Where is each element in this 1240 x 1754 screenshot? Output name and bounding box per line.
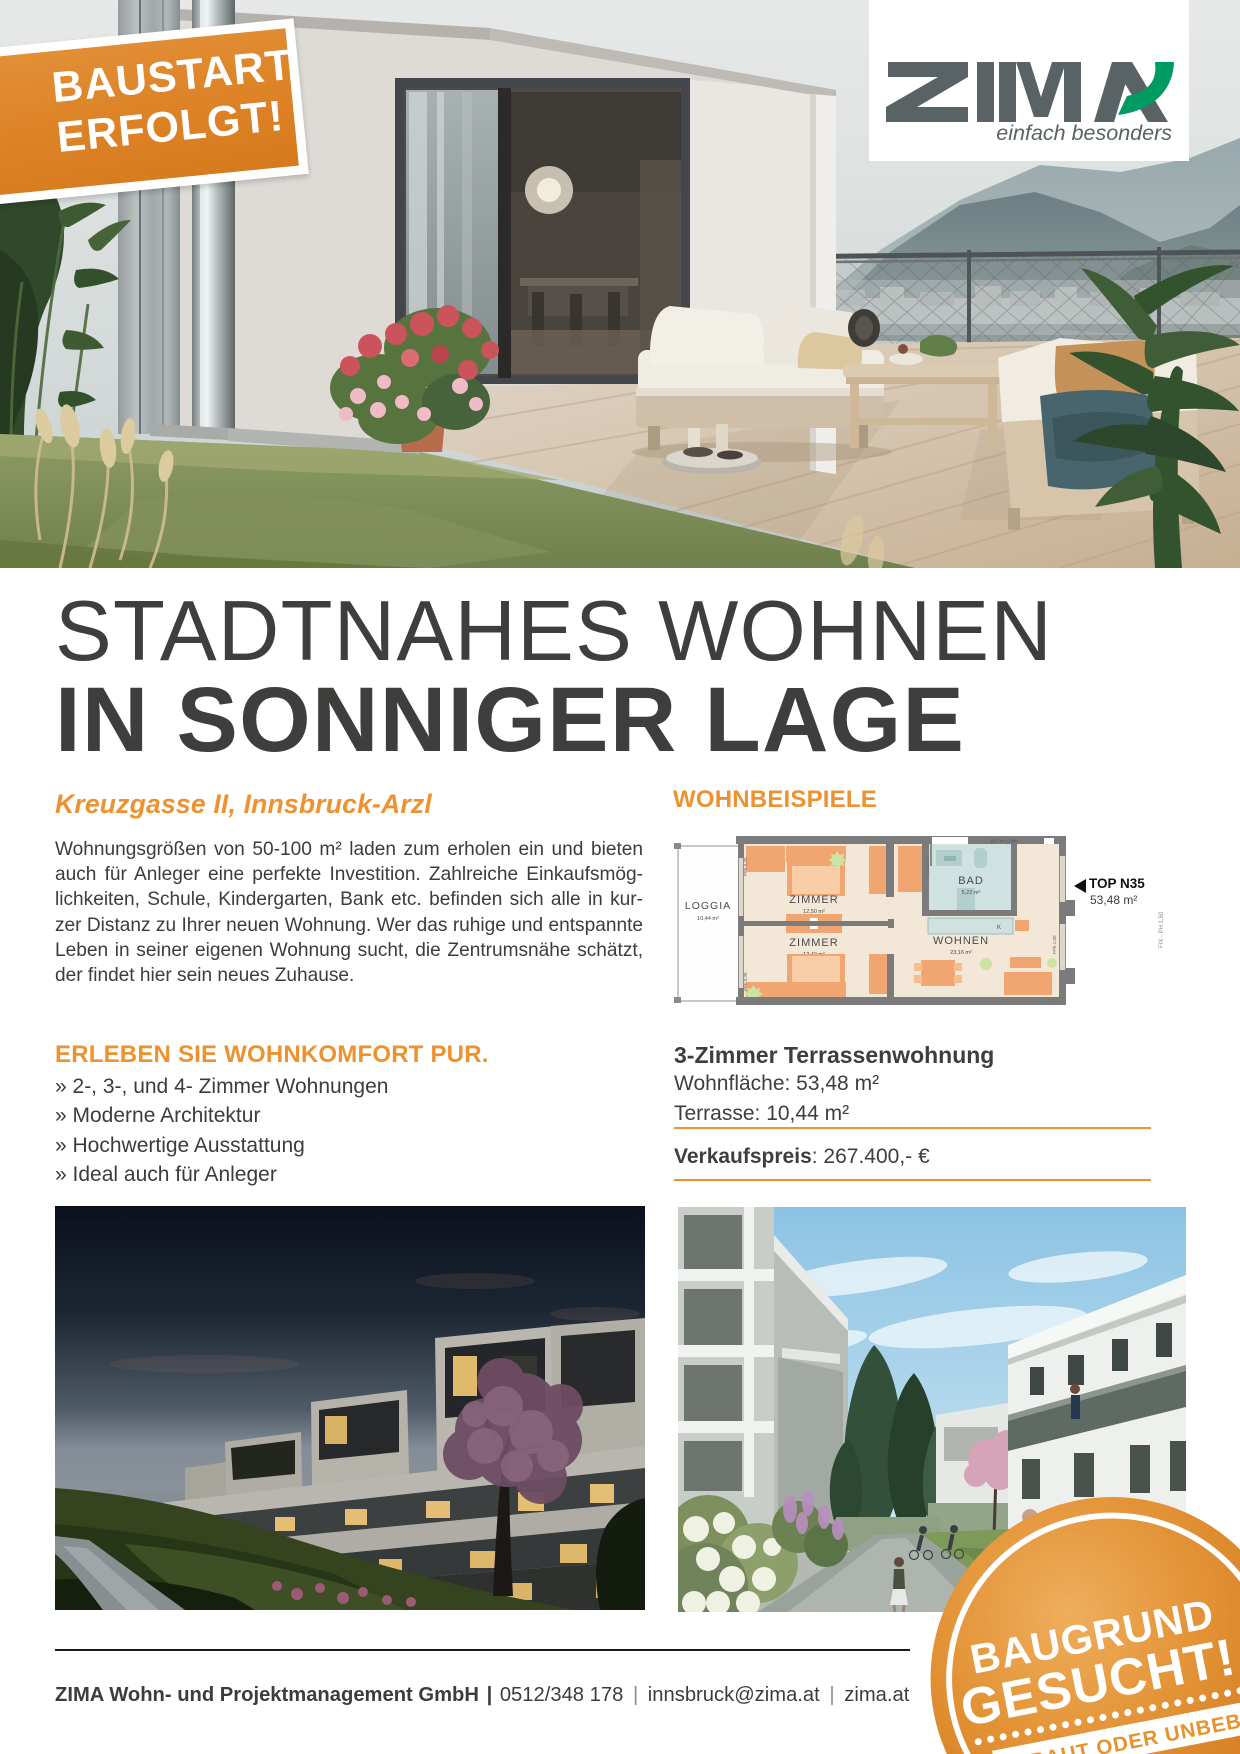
- svg-text:BAD: BAD: [958, 875, 984, 887]
- svg-text:K: K: [997, 925, 1001, 931]
- svg-text:TOP N35: TOP N35: [1089, 876, 1145, 891]
- svg-text:10,5 h=1,78m: 10,5 h=1,78m: [990, 839, 1018, 844]
- svg-text:10,44 m²: 10,44 m²: [697, 916, 719, 922]
- svg-text:LOGGIA: LOGGIA: [685, 900, 731, 912]
- svg-text:5,22 m²: 5,22 m²: [962, 890, 981, 896]
- svg-text:53,48 m²: 53,48 m²: [1090, 893, 1137, 907]
- svg-text:ZIMMER: ZIMMER: [789, 894, 838, 906]
- svg-text:einfach besonders: einfach besonders: [996, 121, 1172, 145]
- svg-text:ZIMMER: ZIMMER: [789, 937, 838, 949]
- svg-text:PPh 0,30: PPh 0,30: [743, 972, 748, 991]
- svg-text:PPh 1,00: PPh 1,00: [1052, 935, 1057, 954]
- svg-text:WOHNEN: WOHNEN: [933, 935, 989, 947]
- svg-text:PPh 0,30: PPh 0,30: [743, 857, 748, 876]
- svg-text:2,060/2,25: 2,060/2,25: [925, 856, 930, 876]
- svg-text:23,16 m²: 23,16 m²: [950, 950, 972, 956]
- svg-text:FIX - PH 1,50: FIX - PH 1,50: [1159, 911, 1165, 948]
